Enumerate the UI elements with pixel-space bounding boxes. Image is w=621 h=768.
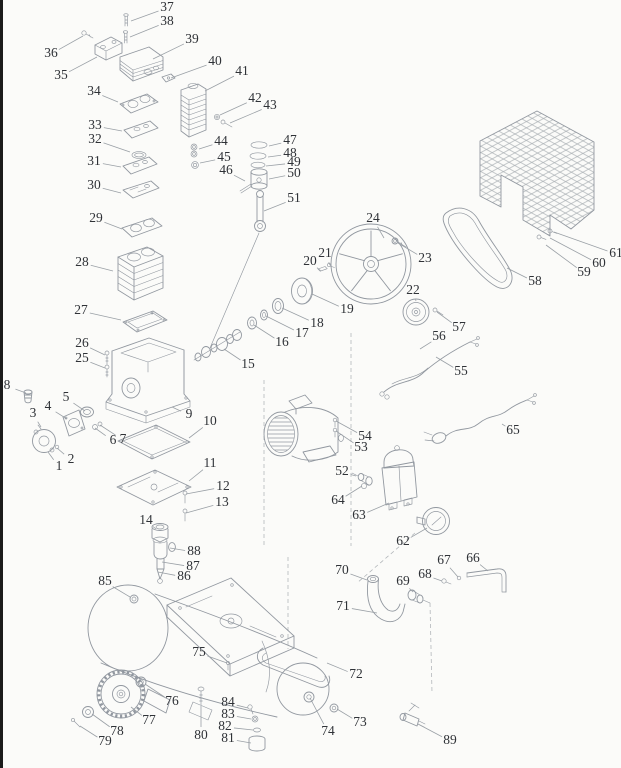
- leader-line-57: [437, 312, 452, 323]
- part-65-power-cord: [424, 394, 536, 445]
- part-motor: [264, 395, 344, 462]
- part-label-35: 35: [54, 67, 68, 82]
- part-label-57: 57: [452, 319, 466, 334]
- part-80-axle-bolt: [198, 687, 204, 705]
- leader-line-50: [269, 176, 285, 179]
- part-63-pressure-switch: [382, 446, 417, 510]
- part-label-7: 7: [120, 431, 127, 446]
- leader-line-86: [158, 572, 175, 575]
- leader-line-89: [418, 724, 442, 737]
- leader-line-3: [38, 422, 41, 427]
- part-28-cylinder: [118, 247, 163, 300]
- leader-line-66: [480, 565, 488, 571]
- part-label-28: 28: [75, 254, 89, 269]
- part-33-valve-plate: [124, 121, 158, 138]
- leader-line-27: [90, 313, 121, 320]
- part-label-54: 54: [358, 428, 372, 443]
- part-35-air-filter: [95, 37, 122, 60]
- leader-line-4: [56, 412, 67, 419]
- part-5-seal: [81, 407, 94, 417]
- part-16-bearing: [248, 317, 257, 329]
- leader-line-37: [131, 11, 159, 21]
- part-label-18: 18: [310, 315, 324, 330]
- part-label-64: 64: [331, 492, 345, 507]
- part-43-screw: [221, 120, 232, 127]
- part-label-26: 26: [75, 335, 89, 350]
- part-label-79: 79: [98, 733, 112, 748]
- leader-line-6: [95, 428, 106, 436]
- leader-line-29: [104, 222, 122, 229]
- leader-line-78: [92, 714, 110, 727]
- part-label-31: 31: [87, 153, 101, 168]
- part-label-60: 60: [592, 255, 606, 270]
- exploded-parts-diagram: 1234567891011121314151617181920212223242…: [0, 0, 621, 768]
- leader-line-59: [546, 245, 577, 268]
- part-label-63: 63: [352, 507, 366, 522]
- leader-line-28: [91, 265, 113, 271]
- part-label-84: 84: [221, 694, 235, 709]
- part-44-45-pin-clips: [191, 144, 198, 168]
- part-label-73: 73: [353, 714, 367, 729]
- leader-line-24: [378, 227, 384, 238]
- leader-line-68: [433, 578, 442, 581]
- part-label-23: 23: [418, 250, 432, 265]
- part-29-gasket: [122, 218, 162, 237]
- leader-line-35: [69, 57, 97, 72]
- part-1-3-oil-pump: [33, 425, 59, 453]
- leader-line-47: [269, 143, 281, 146]
- part-label-33: 33: [88, 117, 102, 132]
- part-label-22: 22: [406, 282, 420, 297]
- part-label-46: 46: [219, 162, 233, 177]
- part-label-13: 13: [215, 494, 229, 509]
- part-label-70: 70: [335, 562, 349, 577]
- part-label-14: 14: [139, 512, 153, 527]
- part-23-flywheel-bolt: [392, 238, 406, 247]
- leader-line-30: [103, 188, 121, 193]
- leader-line-88: [170, 548, 185, 551]
- part-81-84-rubber-foot: [248, 705, 265, 751]
- part-label-67: 67: [437, 552, 451, 567]
- part-10-gasket-plate: [118, 425, 190, 459]
- part-label-20: 20: [303, 253, 317, 268]
- leader-line-63: [367, 503, 389, 512]
- part-77-wheel: [97, 670, 145, 718]
- part-label-9: 9: [186, 406, 193, 421]
- part-label-21: 21: [318, 245, 332, 260]
- part-label-88: 88: [187, 543, 201, 558]
- leader-line-42: [220, 103, 247, 115]
- leader-line-15: [224, 349, 241, 360]
- leader-line-82: [234, 728, 253, 730]
- leader-line-49: [266, 164, 285, 166]
- part-24-flywheel: [331, 224, 411, 304]
- leader-line-48: [268, 155, 281, 157]
- leader-line-12: [186, 489, 214, 494]
- leader-line-1: [48, 452, 54, 460]
- part-label-34: 34: [87, 83, 101, 98]
- part-label-56: 56: [432, 328, 446, 343]
- part-label-40: 40: [208, 53, 222, 68]
- part-label-85: 85: [98, 573, 112, 588]
- part-79-axle-pin: [71, 718, 80, 727]
- part-label-68: 68: [418, 566, 432, 581]
- part-42-washer: [214, 114, 219, 119]
- part-label-38: 38: [160, 13, 174, 28]
- leader-line-61: [554, 232, 608, 251]
- leader-line-72: [327, 663, 348, 672]
- leader-line-26: [90, 348, 105, 355]
- part-label-51: 51: [287, 190, 301, 205]
- part-label-6: 6: [110, 432, 117, 447]
- part-19-hub: [292, 278, 313, 304]
- belt-guard-grille: [480, 111, 594, 236]
- leader-line-23: [398, 243, 417, 254]
- part-label-3: 3: [30, 405, 37, 420]
- leader-line-74: [310, 698, 324, 724]
- part-label-50: 50: [287, 165, 301, 180]
- part-74-plug: [304, 692, 314, 702]
- part-label-75: 75: [192, 644, 206, 659]
- part-39-cylinder-head: [120, 47, 163, 81]
- part-label-76: 76: [165, 693, 179, 708]
- diagram-canvas: 1234567891011121314151617181920212223242…: [0, 0, 621, 768]
- part-27-base-gasket: [123, 311, 167, 332]
- part-label-78: 78: [110, 723, 124, 738]
- assembly-axis-lines: [210, 233, 432, 693]
- leader-line-87: [162, 562, 184, 566]
- part-37-38-head-screws: [123, 14, 128, 43]
- part-12-13-bolts: [183, 491, 187, 521]
- leader-line-55: [436, 357, 453, 367]
- part-73-drain-port: [330, 704, 338, 712]
- leader-line-19: [312, 294, 339, 306]
- part-label-10: 10: [203, 413, 217, 428]
- leader-line-64: [346, 486, 362, 496]
- part-label-74: 74: [321, 723, 335, 738]
- part-label-24: 24: [366, 210, 380, 225]
- part-label-69: 69: [396, 573, 410, 588]
- leader-line-46: [234, 175, 245, 181]
- part-label-39: 39: [185, 31, 199, 46]
- leader-line-56: [420, 342, 431, 349]
- leader-line-39: [153, 44, 184, 59]
- part-label-87: 87: [186, 558, 200, 573]
- part-9-crankcase: [106, 338, 190, 423]
- part-label-61: 61: [609, 245, 621, 260]
- part-78-washer: [83, 707, 94, 718]
- leader-line-51: [264, 202, 286, 211]
- part-label-65: 65: [506, 422, 520, 437]
- part-34-head-gasket: [120, 94, 158, 113]
- leader-line-43: [230, 110, 262, 123]
- leader-line-10: [189, 427, 203, 438]
- leader-line-9: [172, 407, 181, 411]
- part-47-50-piston-rings: [250, 142, 267, 168]
- part-label-5: 5: [63, 389, 70, 404]
- part-label-71: 71: [336, 598, 350, 613]
- part-57-set-screw: [433, 308, 443, 315]
- leader-line-73: [337, 709, 352, 718]
- part-label-17: 17: [295, 325, 309, 340]
- part-32-gasket: [132, 152, 146, 159]
- part-label-25: 25: [75, 350, 89, 365]
- leader-line-38: [130, 25, 159, 37]
- part-label-37: 37: [160, 0, 174, 14]
- leader-line-65: [502, 424, 505, 426]
- part-label-19: 19: [340, 301, 354, 316]
- part-label-43: 43: [263, 97, 277, 112]
- part-label-16: 16: [275, 334, 289, 349]
- part-label-52: 52: [335, 463, 349, 478]
- leader-line-31: [103, 164, 121, 167]
- part-label-62: 62: [396, 533, 410, 548]
- leader-line-83: [237, 717, 251, 719]
- part-36-bolt: [82, 31, 93, 38]
- part-label-80: 80: [194, 727, 208, 742]
- leader-line-79: [80, 726, 97, 737]
- leader-line-85: [113, 587, 130, 597]
- part-17-washer: [261, 310, 268, 320]
- part-label-12: 12: [216, 478, 230, 493]
- part-72-handle-frame: [257, 648, 329, 687]
- part-labels: 1234567891011121314151617181920212223242…: [4, 0, 621, 748]
- part-66-handle-rod: [467, 569, 506, 592]
- part-4-bracket: [63, 410, 85, 436]
- part-label-27: 27: [74, 302, 88, 317]
- leader-line-25: [90, 362, 105, 368]
- leader-line-62: [411, 528, 427, 537]
- part-20-key: [318, 267, 327, 272]
- leader-line-45: [200, 160, 215, 163]
- part-89-drain-cock: [400, 703, 425, 727]
- leader-line-58: [507, 268, 527, 278]
- part-75-tank: [88, 585, 329, 717]
- part-label-41: 41: [235, 63, 249, 78]
- part-8-oil-plug: [24, 390, 32, 403]
- part-label-42: 42: [248, 90, 262, 105]
- leader-line-67: [450, 568, 458, 577]
- leader-line-36: [59, 36, 83, 50]
- part-label-11: 11: [204, 455, 217, 470]
- part-label-89: 89: [443, 732, 457, 747]
- part-22-motor-pulley: [403, 299, 429, 325]
- part-label-8: 8: [4, 377, 11, 392]
- part-62-pressure-gauge: [417, 508, 450, 535]
- leader-line-33: [104, 128, 122, 131]
- part-25-26-bolts: [105, 351, 109, 377]
- leader-line-75: [207, 656, 227, 663]
- part-58-v-belt: [443, 208, 512, 288]
- leader-line-60: [550, 238, 591, 260]
- part-label-59: 59: [577, 264, 591, 279]
- leader-line-34: [102, 95, 118, 102]
- part-40-fitting: [162, 74, 175, 82]
- part-68-screw: [442, 579, 451, 584]
- tank-platform: [167, 578, 294, 676]
- part-69-elbow-fitting: [408, 590, 430, 603]
- part-label-15: 15: [241, 356, 255, 371]
- part-85-nut: [130, 595, 138, 603]
- part-label-55: 55: [454, 363, 468, 378]
- part-label-2: 2: [68, 451, 75, 466]
- leader-line-40: [171, 65, 207, 78]
- part-label-4: 4: [45, 398, 52, 413]
- leader-line-11: [189, 470, 203, 481]
- part-label-30: 30: [87, 177, 101, 192]
- leader-line-17: [266, 316, 294, 330]
- leader-line-18: [282, 308, 309, 320]
- scan-left-border: [0, 0, 3, 768]
- leader-line-44: [199, 145, 212, 149]
- leader-line-16: [254, 325, 274, 338]
- leader-line-2: [57, 448, 64, 454]
- part-51-connecting-rod: [255, 191, 266, 232]
- part-label-29: 29: [89, 210, 103, 225]
- leader-line-71: [352, 609, 377, 613]
- part-18-bearing: [273, 299, 284, 314]
- part-label-72: 72: [349, 666, 363, 681]
- part-label-36: 36: [44, 45, 58, 60]
- leader-line-32: [104, 143, 130, 152]
- part-label-77: 77: [142, 712, 156, 727]
- leader-line-41: [205, 76, 234, 91]
- part-label-66: 66: [466, 550, 480, 565]
- part-41-aftercooler: [181, 83, 206, 137]
- leader-line-54: [336, 421, 357, 433]
- part-31-valve-plate: [123, 157, 157, 174]
- part-30-valve-plate: [123, 181, 159, 198]
- part-11-base-plate: [117, 470, 191, 505]
- part-label-58: 58: [528, 273, 542, 288]
- part-label-44: 44: [214, 133, 228, 148]
- part-label-1: 1: [56, 458, 63, 473]
- part-label-32: 32: [88, 131, 102, 146]
- leader-line-13: [186, 505, 213, 513]
